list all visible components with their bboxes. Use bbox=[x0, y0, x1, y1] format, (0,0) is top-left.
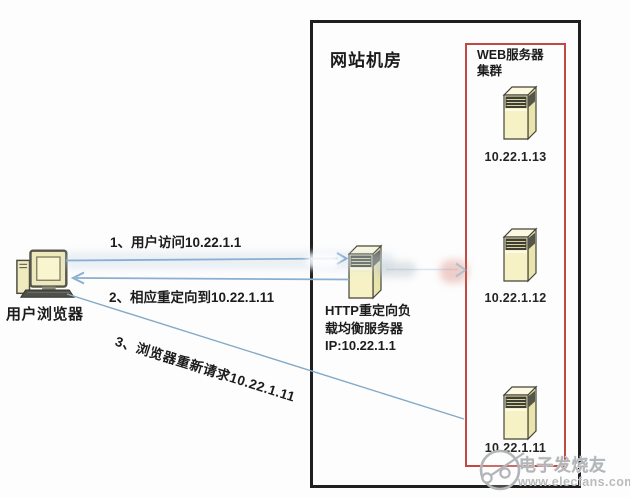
arrow-2-line bbox=[76, 278, 349, 280]
server-room-box: 网站机房 HTTP重定向负 载均衡服务器 IP:10.22.1.1 WEB服务器… bbox=[310, 20, 581, 488]
arrow-3-label: 3、浏览器重新请求10.22.1.11 bbox=[113, 330, 298, 406]
server-ip-label: 10.22.1.11 bbox=[467, 441, 564, 455]
server-tower-icon bbox=[502, 226, 538, 283]
server-ip-label: 10.22.1.13 bbox=[467, 150, 564, 164]
load-balancer-label-line1: HTTP重定向负 bbox=[325, 302, 425, 320]
web-cluster-title-line2: 集群 bbox=[477, 63, 563, 79]
desktop-computer-icon bbox=[14, 246, 76, 300]
user-browser-label: 用户浏览器 bbox=[6, 303, 92, 324]
server-room-title: 网站机房 bbox=[330, 46, 402, 71]
server-tower-icon bbox=[502, 384, 538, 441]
server-ip-label: 10.22.1.12 bbox=[467, 291, 564, 305]
web-cluster-title-line1: WEB服务器 bbox=[477, 47, 563, 63]
load-balancer-label-line3: IP:10.22.1.1 bbox=[325, 337, 425, 355]
arrow-1-line bbox=[66, 259, 338, 261]
web-cluster-title: WEB服务器 集群 bbox=[477, 47, 563, 79]
arrow-2-label: 2、相应重定向到10.22.1.11 bbox=[109, 286, 274, 306]
web-cluster-box: WEB服务器 集群 10.22.1.13 bbox=[465, 43, 566, 467]
load-balancer-label-line2: 载均衡服务器 bbox=[325, 320, 425, 338]
load-balancer-label: HTTP重定向负 载均衡服务器 IP:10.22.1.1 bbox=[325, 302, 425, 355]
server-tower-icon bbox=[347, 243, 383, 300]
server-tower-icon bbox=[502, 84, 538, 141]
arrow-1-label: 1、用户访问10.22.1.1 bbox=[110, 231, 241, 251]
network-diagram: 用户浏览器 网站机房 HTTP重定向负 载均衡服务器 IP:10.22.1.1 … bbox=[0, 0, 630, 497]
